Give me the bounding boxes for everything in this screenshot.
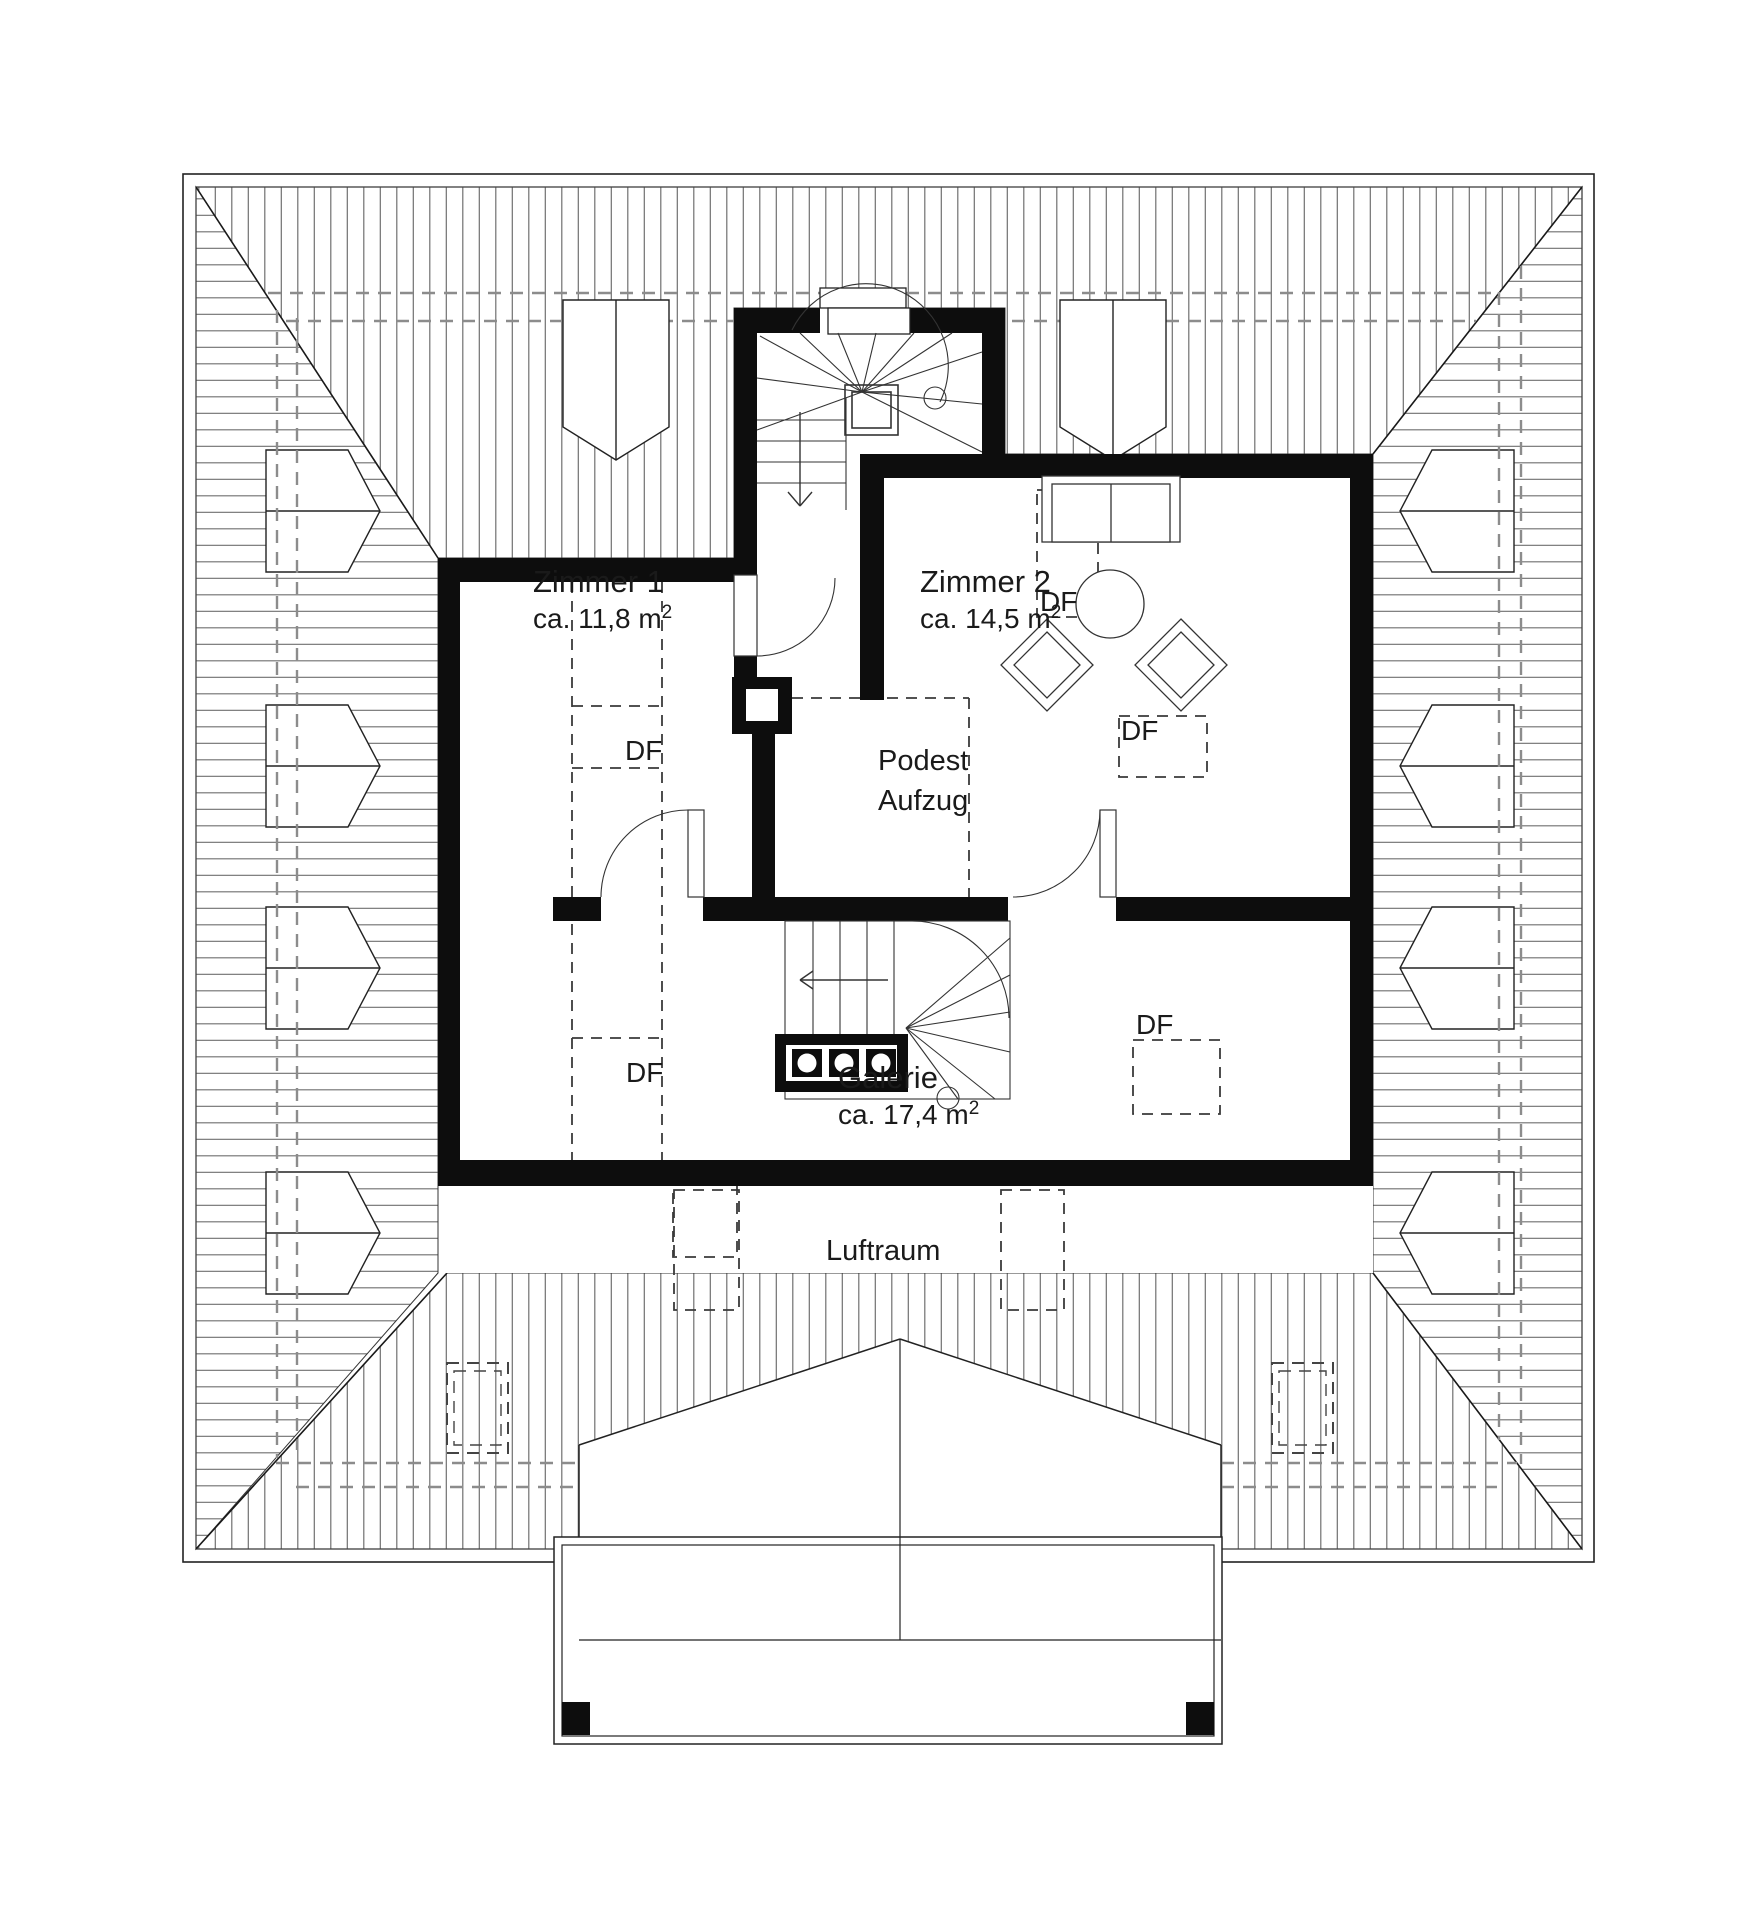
- zimmer1-area: ca. 11,8 m2: [533, 602, 672, 634]
- df-label-zimmer1-upper: DF: [625, 735, 662, 766]
- df-label-zimmer2-upper: DF: [1040, 586, 1077, 617]
- tower-window: [820, 288, 910, 334]
- wall-bottom: [438, 1160, 1373, 1186]
- wall-galerie-top-b: [703, 897, 1008, 921]
- flue-1: [798, 1054, 817, 1073]
- door-corridor-leaf: [734, 575, 757, 656]
- podest-label-line2: Aufzug: [878, 785, 968, 817]
- wall-right: [1350, 454, 1373, 1186]
- wall-corridor-right: [860, 478, 884, 700]
- wall-tower-left-lower: [734, 656, 757, 677]
- balcony-post-right: [1186, 1702, 1214, 1735]
- wall-tower-right: [982, 308, 1005, 478]
- wall-galerie-top-a: [553, 897, 601, 921]
- df-label-zimmer1-lower: DF: [626, 1057, 663, 1088]
- galerie-name: Galerie: [838, 1060, 938, 1095]
- floorplan-page: Zimmer 1 ca. 11,8 m2 Zimmer 2 ca. 14,5 m…: [0, 0, 1738, 1920]
- wall-tower-top-a: [734, 308, 820, 333]
- df-label-zimmer2-lower: DF: [1121, 715, 1158, 746]
- df-label-galerie: DF: [1136, 1009, 1173, 1040]
- shaft-block: [732, 677, 792, 734]
- dormer-top-left: [563, 300, 669, 460]
- wall-left: [438, 558, 460, 1186]
- wall-corridor-left: [752, 734, 775, 897]
- zimmer2-name: Zimmer 2: [920, 564, 1051, 599]
- balcony-post-left: [562, 1702, 590, 1735]
- wall-zimmer2-top: [860, 454, 1373, 478]
- sofa: [1042, 476, 1180, 542]
- luftraum-label: Luftraum: [826, 1235, 940, 1267]
- galerie-area: ca. 17,4 m2: [838, 1098, 979, 1130]
- wall-galerie-top-c: [1116, 897, 1373, 921]
- wall-tower-left: [734, 308, 757, 580]
- dormer-top-right: [1060, 300, 1166, 460]
- podest-label-line1: Podest: [878, 745, 968, 777]
- round-table: [1076, 570, 1144, 638]
- zimmer1-name: Zimmer 1: [533, 564, 664, 599]
- floorplan-drawing: Zimmer 1 ca. 11,8 m2 Zimmer 2 ca. 14,5 m…: [0, 0, 1738, 1920]
